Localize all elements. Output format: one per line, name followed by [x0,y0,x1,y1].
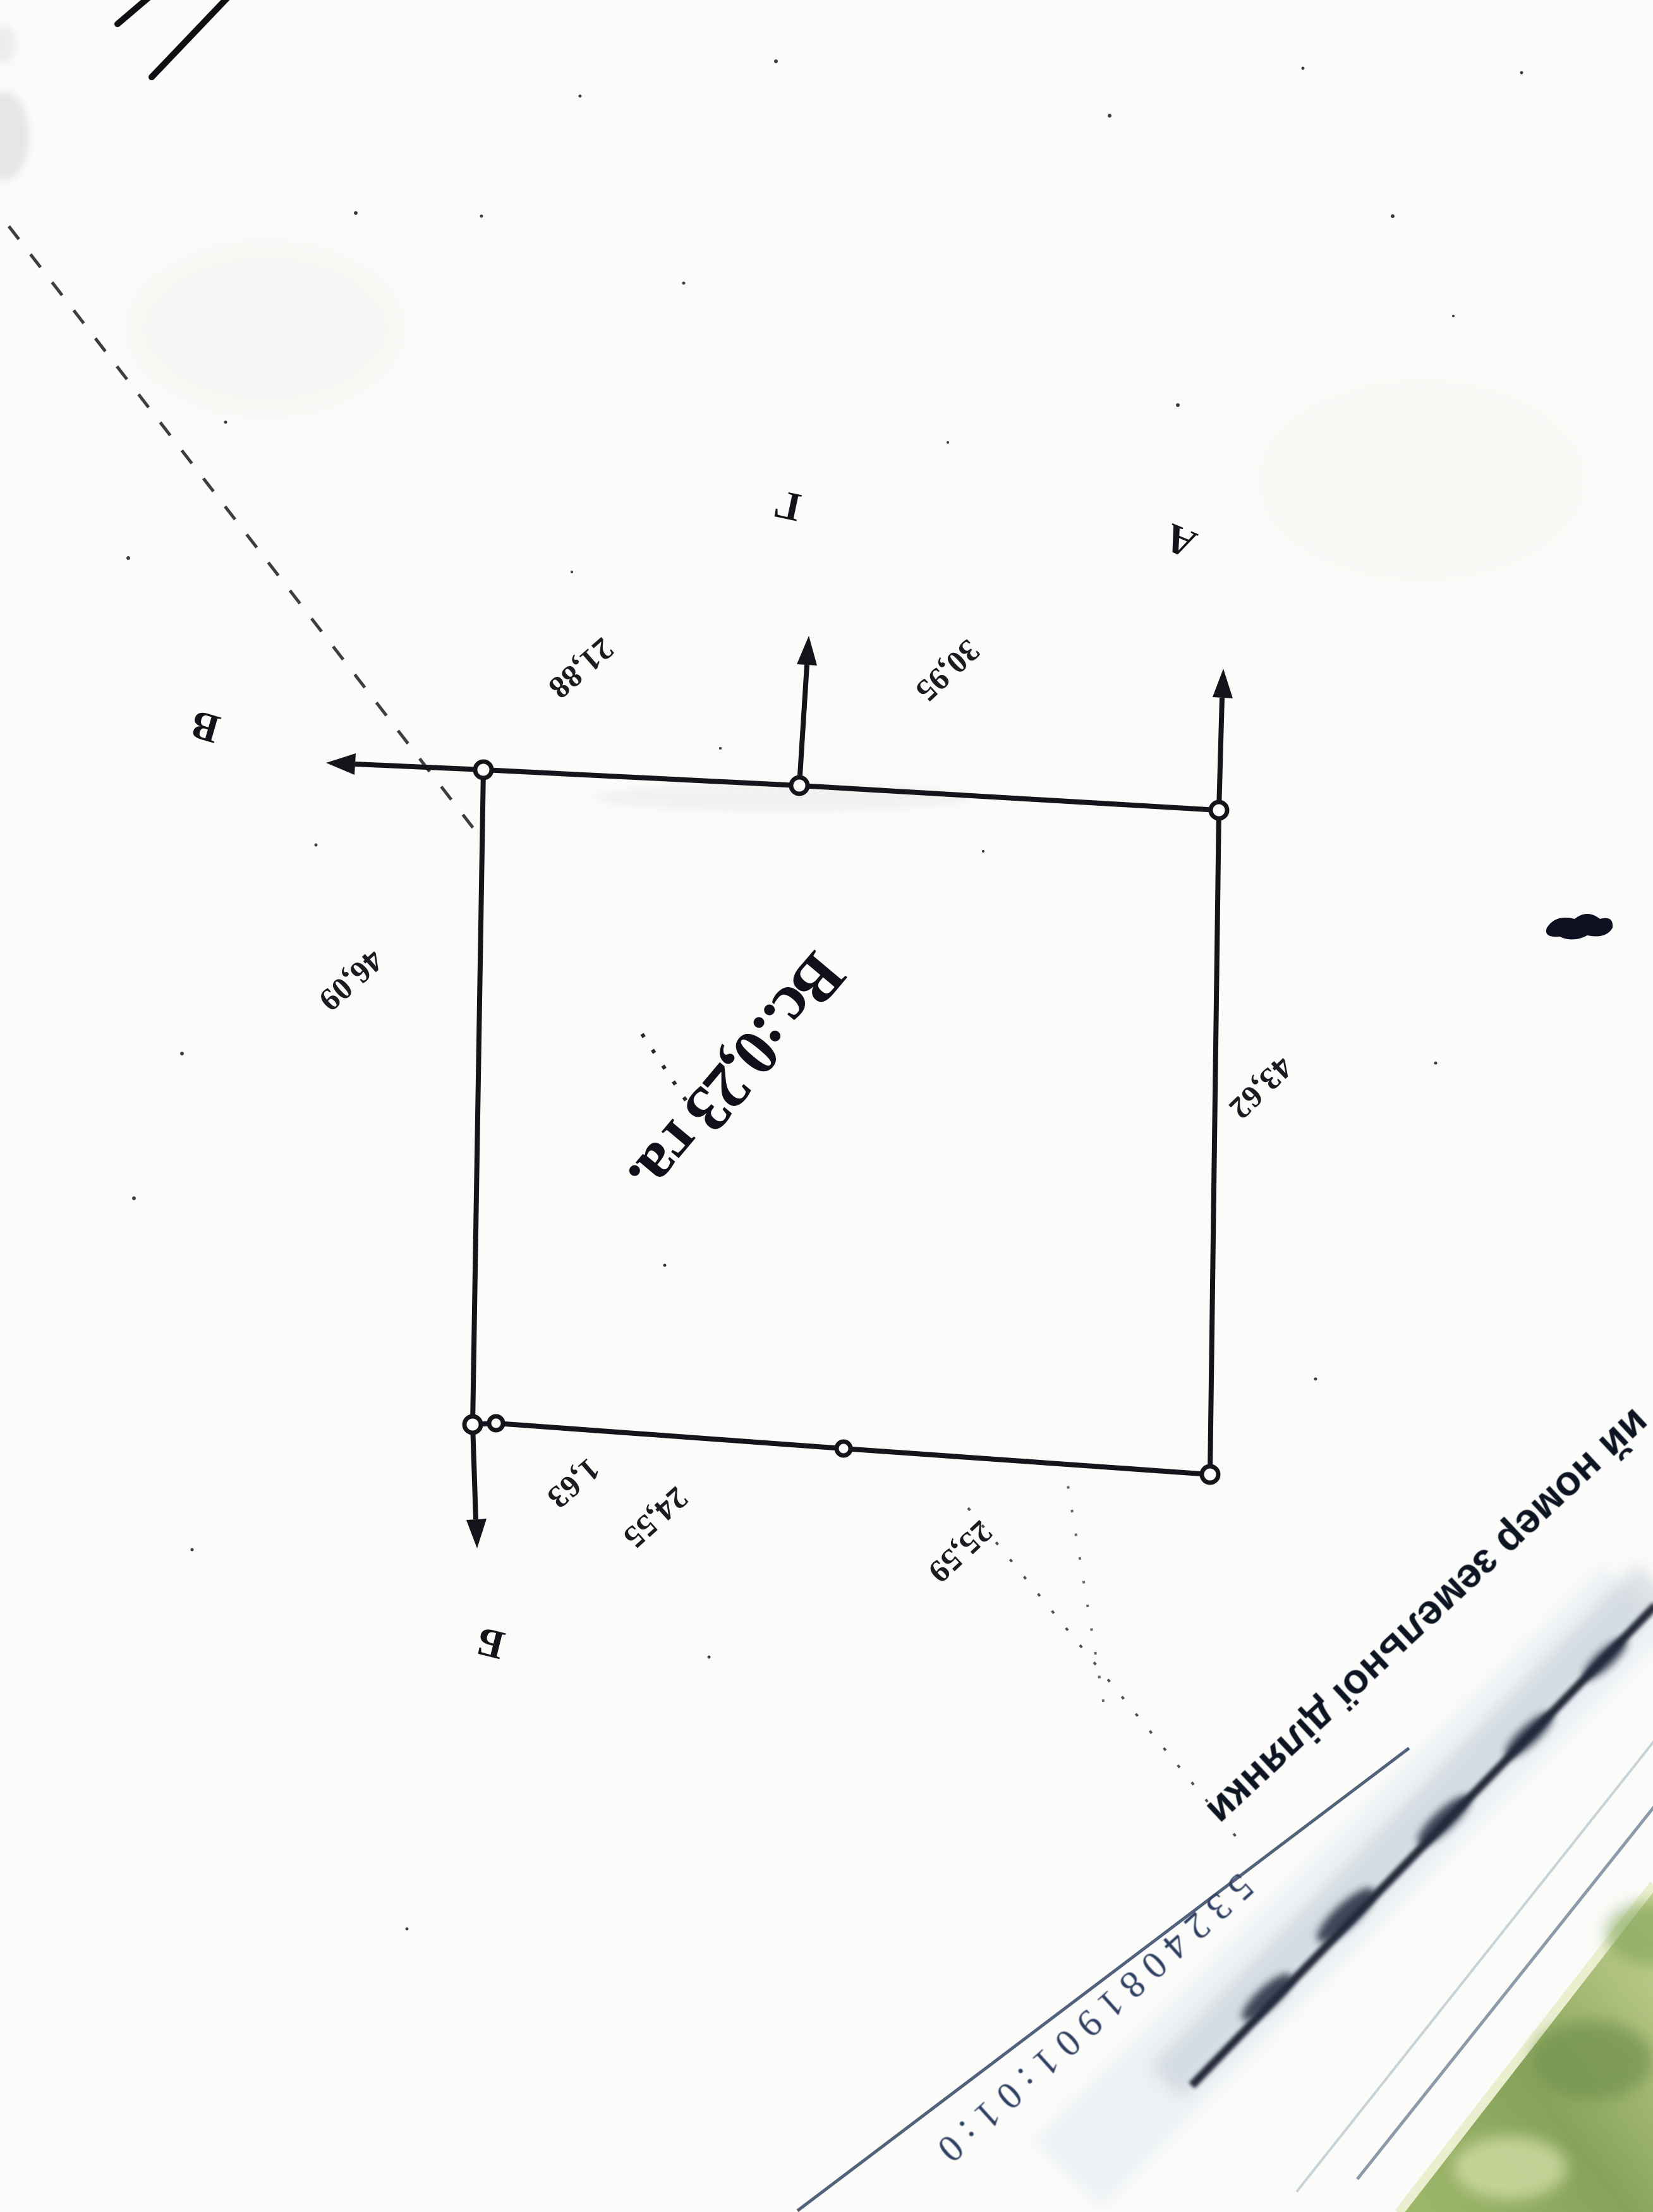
arrow-to-A-head-icon [1213,669,1233,698]
arrow-to-G-head-icon [797,636,817,665]
survey-nodes [464,762,1227,1483]
background-texture-dark [1532,2021,1652,2100]
node-top-right [1211,802,1227,818]
scan-smudges [0,25,1586,811]
node-top-mid [791,777,808,794]
pen-stroke-icon [152,0,233,77]
node-bottom-right [1202,1466,1218,1483]
node-bottom-left [464,1416,481,1433]
parcel-boundary [473,770,1219,1474]
scanned-cadastral-plan-page: В Г А Б 21,88 30,95 46,09 43,62 1,63 24,… [0,0,1653,2212]
arrow-to-B2-shaft [473,1425,476,1519]
dotted-line-bottom-1 [968,1508,1236,1837]
node-top-left [475,762,492,778]
pen-stroke-icon [118,0,152,24]
node-bottom-mid [837,1442,851,1455]
construction-dotted-lines [642,1034,1236,1837]
dotted-line-bottom-2 [1064,1462,1105,1709]
pen-strokes-top [118,0,233,77]
node-bottom-left-2 [489,1416,503,1430]
arrow-to-B2-head-icon [466,1519,487,1548]
arrow-to-A-shaft [1219,698,1222,810]
ink-blot-icon [1546,914,1613,940]
arrow-to-B-head-icon [326,753,356,775]
background-texture-light [1453,2136,1567,2199]
plan-canvas [0,0,1653,2212]
arrow-to-G-shaft [799,665,807,786]
vertex-arrows [326,636,1233,1548]
arrow-to-B-shaft [355,764,483,770]
